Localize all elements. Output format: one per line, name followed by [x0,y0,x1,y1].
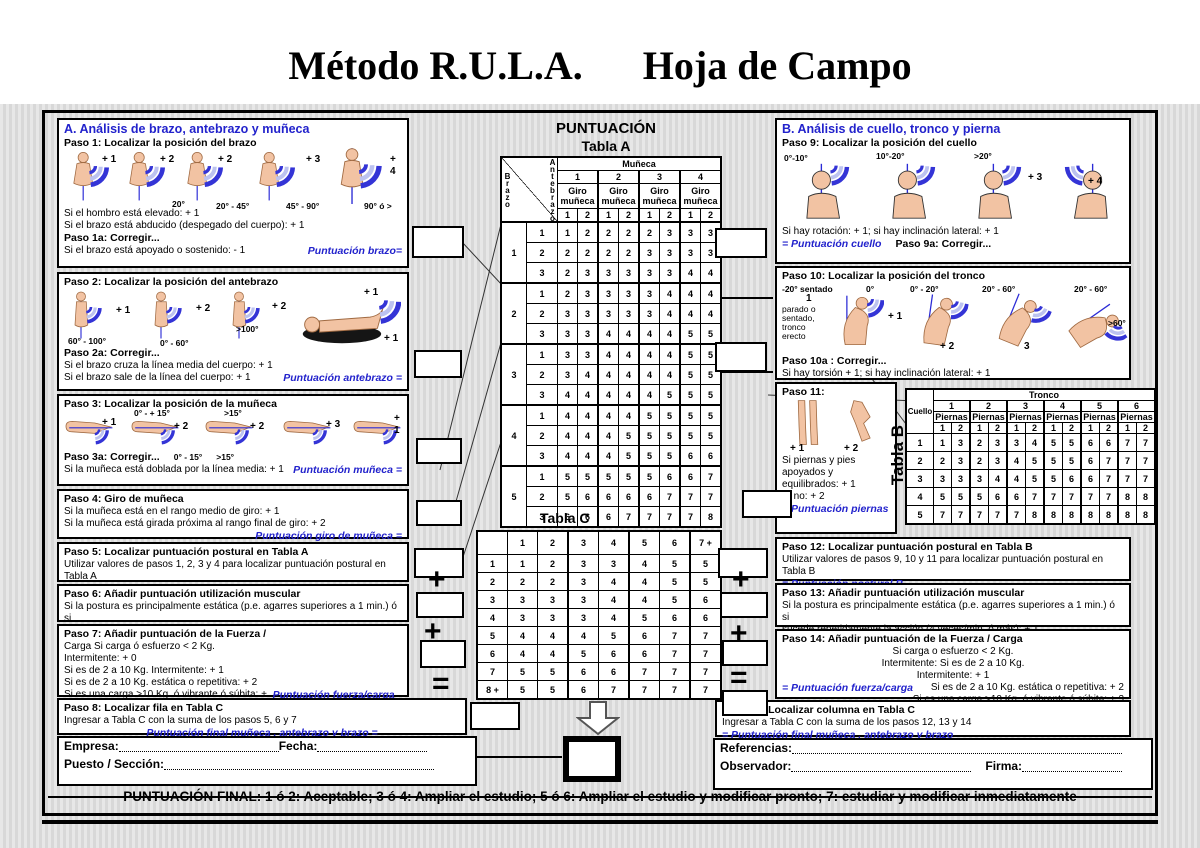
tronco-col: 3 [1007,401,1044,412]
firma-field[interactable] [1022,760,1122,772]
table-cell: 3 [508,609,538,627]
forearm-figure-icon [146,289,194,343]
figure-angle: 0°-10° [784,152,808,164]
table-cell: 3 [639,304,660,324]
paso-2-box: Paso 2: Localizar la posición del antebr… [57,272,409,391]
paso-1-box: A. Análisis de brazo, antebrazo y muñeca… [57,118,409,268]
section-a-header: A. Análisis de brazo, antebrazo y muñeca [64,122,402,137]
paso-3-line1: Si la muñeca está doblada por la línea m… [64,464,284,476]
table-cell: 4 [639,324,660,345]
row-header: 3 [527,446,558,467]
row-group-header: 3 [501,344,527,405]
paso-5-title: Paso 5: Localizar puntuación postural en… [64,546,402,559]
row-header: 2 [527,365,558,385]
arm-figure-icon [332,146,390,208]
table-cell: 7 [934,506,952,525]
final-score-slot[interactable] [563,736,621,782]
table-cell: 4 [629,555,660,573]
paso-12-box: Paso 12: Localizar puntuación postural e… [775,537,1131,581]
paso-15-title: Paso 15: Localizar columna en Tabla C [722,704,1124,717]
table-cell: 3 [952,434,971,452]
table-cell: 4 [1007,470,1026,488]
empresa-field[interactable] [119,740,279,752]
table-cell: 3 [989,452,1008,470]
table-cell: 1 [934,434,952,452]
table-cell: 6 [701,446,722,467]
table-cell: 7 [660,627,691,645]
table-cell: 3 [952,470,971,488]
table-cell: 3 [558,324,578,345]
paso-7-line1: Carga Si carga ó esfuerzo < 2 Kg. [64,641,402,653]
table-cell: 7 [1044,488,1063,506]
table-cell: 5 [690,573,721,591]
tabla-c-col: 2 [538,531,569,555]
paso-9-score-slot[interactable] [715,228,767,258]
paso-4-box: Paso 4: Giro de muñeca Si la muñeca está… [57,489,409,539]
paso-2-score-slot[interactable] [414,350,462,378]
paso-3-score-slot[interactable] [416,438,462,464]
table-cell: 7 [690,681,721,700]
table-cell: 5 [660,591,691,609]
cuello-axis-label: Cuello [906,389,934,434]
table-cell: 7 [970,506,989,525]
table-cell: 7 [1118,470,1137,488]
table-cell: 5 [599,627,630,645]
paso-2-line2: Si el brazo sale de la línea del cuerpo:… [64,372,251,384]
paso-2-figures: + 1 + 2 + 2 + 1 + 1 60° - 100° 0° - 60° … [64,289,402,347]
table-cell: 1 [558,222,578,243]
row-header: 8 + [477,681,508,700]
paso-15-line1: Ingresar a Tabla C con la suma de los pa… [722,717,1124,729]
figure-angle: >15° [224,407,242,419]
figure-angle: 0° - 60° [160,337,189,349]
figure-score: + 1 [102,417,116,429]
table-cell: 5 [598,466,619,487]
tronco-col: 1 [934,401,971,412]
paso-3a-correg: Paso 3a: Corregir... [64,451,160,464]
table-cell: 6 [568,681,599,700]
paso-11-title: Paso 11: [782,386,890,399]
paso-8-box: Paso 8: Localizar fila en Tabla C Ingres… [57,698,467,735]
paso-12-title: Paso 12: Localizar puntuación postural e… [782,541,1124,554]
table-cell: 4 [989,470,1008,488]
figure-angle: 45° - 90° [286,200,319,212]
table-cell: 7 [690,627,721,645]
table-cell: 3 [680,222,701,243]
table-cell: 5 [1063,434,1082,452]
table-cell: 4 [629,591,660,609]
tabla-a: Brazo Antebrazo Muñeca 1 2 3 4 Giro muñe… [500,156,722,528]
paso-13-score-slot[interactable] [720,592,768,618]
figure-angle: >60° [1108,317,1126,329]
table-cell: 7 [1137,434,1156,452]
table-cell: 7 [1081,488,1100,506]
table-cell: 7 [690,663,721,681]
figure-score: + 1 [384,333,398,345]
figure-angle: >100° [236,323,259,335]
table-cell: 5 [701,405,722,426]
table-cell: 3 [598,304,619,324]
table-cell: 6 [1063,470,1082,488]
table-cell: 3 [578,304,599,324]
table-cell: 4 [1007,452,1026,470]
tabla-c-title: Tabla C [540,510,590,526]
parado-label: parado o sentado, tronco erecto [782,305,826,341]
puntuacion-title: PUNTUACIÓN [500,120,712,137]
paso-15-score-slot[interactable] [722,690,768,716]
referencias-label: Referencias: [720,742,792,754]
paso-13-box: Paso 13: Añadir puntuación utilización m… [775,583,1131,627]
paso-6-title: Paso 6: Añadir puntuación utilización mu… [64,588,402,601]
giro-header: Giro muñeca [680,184,721,209]
table-cell: 8 [1044,506,1063,525]
figure-angle: >15° [216,451,234,464]
paso-3-figures: + 1 + 2 + 2 + 3 + 1 0° - + 15° >15° [64,411,402,451]
figure-angle: 60° - 100° [68,335,106,347]
row-header: 2 [906,452,934,470]
paso-8-score-slot[interactable] [470,702,520,730]
paso-8-line1: Ingresar a Tabla C con la suma de los pa… [64,715,460,727]
paso-9-figures: 0°-10° 10°-20° >20° + 3 + 4 [782,150,1124,226]
table-cell: 3 [578,344,599,365]
referencias-field[interactable] [792,742,1122,754]
table-cell: 5 [1026,452,1045,470]
table-cell: 5 [538,681,569,700]
giro-header: Giro muñeca [639,184,680,209]
paso-1a-correg: Paso 1a: Corregir... [64,232,160,245]
paso-14-line3: Intermitente: + 1 [782,670,1124,682]
table-cell: 7 [701,487,722,507]
table-cell: 4 [578,426,599,446]
paso-7-line4: Si es de 2 a 10 Kg. estática o repetitiv… [64,677,402,689]
row-group-header: 4 [501,405,527,466]
empresa-box: Empresa: Fecha: Puesto / Sección: [57,736,477,786]
neck-figure-icon [1060,160,1118,222]
paso-10-score-slot[interactable] [715,342,767,372]
table-cell: 5 [639,446,660,467]
row-group-header: 2 [501,283,527,344]
equals-operator: = [432,670,450,698]
table-cell: 5 [660,426,681,446]
giro-sub: 1 [598,208,619,222]
table-cell: 6 [639,487,660,507]
table-cell: 4 [598,385,619,406]
paso-2a-correg: Paso 2a: Corregir... [64,347,402,360]
neck-figure-icon [968,160,1026,222]
table-cell: 4 [680,263,701,284]
puesto-field[interactable] [164,758,434,770]
table-cell: 4 [558,405,578,426]
paso-7-score-slot[interactable] [420,640,466,668]
figure-score: + 1 [888,311,902,323]
referencias-box: Referencias: Observador: Firma: [713,738,1153,790]
observador-field[interactable] [791,760,971,772]
fecha-field[interactable] [317,740,427,752]
paso-11-box: Paso 11: + 1 + 2 Si piernas y pies apoya… [775,382,897,534]
paso-14-box: Paso 14: Añadir puntuación de la Fuerza … [775,629,1131,699]
table-cell: 4 [619,344,640,365]
piernas-header: Piernas [1081,412,1118,423]
paso-10-line1: Si hay torsión + 1; si hay inclinación l… [782,368,1124,380]
paso-9-line1: Si hay rotación: + 1; si hay inclinación… [782,226,1124,238]
table-cell: 5 [701,426,722,446]
figure-score: + 2 [218,154,232,166]
table-cell: 7 [989,506,1008,525]
paso-11-score-slot[interactable] [742,490,792,518]
table-cell: 2 [538,573,569,591]
paso-4-score-label: Puntuación giro de muñeca = [64,530,402,542]
wrist-figure-icon [204,415,256,447]
table-cell: 4 [598,324,619,345]
table-cell: 3 [558,344,578,365]
row-group-header: 1 [501,222,527,283]
row-header: 1 [527,222,558,243]
row-header: 4 [906,488,934,506]
table-cell: 6 [619,487,640,507]
tronco-col: 6 [1118,401,1155,412]
table-cell: 3 [660,263,681,284]
row-header: 3 [527,385,558,406]
row-header: 5 [906,506,934,525]
row-header: 3 [906,470,934,488]
figure-angle: 10°-20° [876,150,905,162]
paso-4-line2: Si la muñeca está girada próxima al rang… [64,518,402,530]
table-cell: 3 [970,470,989,488]
row-header: 1 [527,466,558,487]
table-cell: 6 [680,446,701,467]
paso-1-figures: + 1 + 2 + 2 + 3 + 4 20° 20° - 45° 45° - … [64,150,402,208]
table-cell: 3 [619,263,640,284]
tronco-col: 5 [1081,401,1118,412]
table-cell: 7 [660,487,681,507]
table-cell: 5 [680,426,701,446]
table-cell: 4 [639,365,660,385]
table-cell: 2 [538,555,569,573]
table-cell: 7 [680,507,701,528]
row-header: 2 [477,573,508,591]
figure-angle: 20° - 45° [216,200,249,212]
table-cell: 6 [660,609,691,627]
table-cell: 7 [629,663,660,681]
tabla-c: 1 2 3 4 5 6 7 + 112334552223445533334456… [476,530,722,700]
paso-1-score-slot[interactable] [412,226,464,258]
table-cell: 3 [558,365,578,385]
table-cell: 4 [639,385,660,406]
table-cell: 5 [568,645,599,663]
table-cell: 5 [558,466,578,487]
bottom-border [42,820,1158,824]
piernas-sub: 1 [1007,423,1026,434]
figure-angle: 90° ó > [364,200,392,212]
table-cell: 6 [1081,452,1100,470]
table-cell: 8 [1137,488,1156,506]
table-cell: 3 [598,263,619,284]
table-cell: 5 [660,555,691,573]
table-cell: 4 [598,344,619,365]
table-cell: 4 [599,573,630,591]
table-cell: 4 [701,283,722,304]
giro-sub: 1 [680,208,701,222]
paso-2-score-label: Puntuación antebrazo = [283,372,402,384]
table-cell: 5 [619,466,640,487]
paso-3-score-label: Puntuación muñeca = [293,464,402,476]
piernas-header: Piernas [1118,412,1155,423]
giro-header: Giro muñeca [598,184,639,209]
table-cell: 7 [639,507,660,528]
paso-1-line2: Si el brazo está abducido (despegado del… [64,220,402,232]
table-cell: 5 [690,555,721,573]
row-header: 5 [477,627,508,645]
final-score-legend: PUNTUACIÓN FINAL: 1 ó 2: Aceptable; 3 ó … [48,786,1152,808]
table-cell: 7 [952,506,971,525]
table-cell: 3 [578,283,599,304]
equals-operator: = [730,664,748,692]
table-cell: 3 [538,591,569,609]
table-cell: 8 [1100,506,1119,525]
paso-3-box: Paso 3: Localizar la posición de la muñe… [57,394,409,486]
figure-score: + 1 [790,443,804,455]
paso-4-score-slot[interactable] [416,500,462,526]
figure-angle: >20° [974,150,992,162]
neck-figure-icon [796,160,854,222]
table-cell: 4 [660,283,681,304]
table-cell: 6 [598,507,619,528]
table-cell: 4 [660,324,681,345]
piernas-sub: 1 [1081,423,1100,434]
table-cell: 6 [660,466,681,487]
figure-score: + 2 [844,443,858,455]
figure-angle: 0° - 20° [910,283,939,295]
table-cell: 4 [701,304,722,324]
paso-6-box: Paso 6: Añadir puntuación utilización mu… [57,584,409,622]
figure-score: + 3 [326,419,340,431]
neck-figure-icon [882,160,940,222]
table-cell: 6 [989,488,1008,506]
table-cell: 8 [1081,506,1100,525]
table-cell: 6 [1081,434,1100,452]
table-cell: 2 [558,243,578,263]
table-cell: 6 [629,645,660,663]
paso-7-line2: Intermitente: + 0 [64,653,402,665]
section-b-header: B. Análisis de cuello, tronco y pierna [782,122,1124,137]
paso-6-line1: Si la postura es principalmente estática… [64,601,402,625]
piernas-header: Piernas [934,412,971,423]
table-cell: 5 [660,405,681,426]
piernas-sub: 2 [1063,423,1082,434]
table-cell: 5 [934,488,952,506]
table-cell: 5 [629,609,660,627]
table-cell: 2 [619,243,640,263]
table-cell: 3 [639,243,660,263]
table-cell: 4 [619,385,640,406]
piernas-header: Piernas [1007,412,1044,423]
observador-label: Observador: [720,760,791,772]
row-header: 2 [527,304,558,324]
plus-operator: + [428,566,446,594]
table-cell: 3 [568,555,599,573]
figure-score: + 4 [390,154,402,178]
row-header: 1 [527,283,558,304]
table-cell: 5 [660,573,691,591]
trunk-figure-icon [908,288,970,355]
table-cell: 8 [701,507,722,528]
paso-10-box: Paso 10: Localizar la posición del tronc… [775,266,1131,380]
table-cell: 4 [508,627,538,645]
row-header: 2 [527,243,558,263]
tabla-c-col: 6 [660,531,691,555]
table-cell: 5 [680,385,701,406]
figure-score: + 1 [102,154,116,166]
row-header: 6 [477,645,508,663]
row-header: 4 [477,609,508,627]
table-cell: 5 [508,681,538,700]
table-cell: 6 [680,466,701,487]
paso-14-title: Paso 14: Añadir puntuación de la Fuerza … [782,633,1124,646]
table-cell: 4 [619,405,640,426]
table-cell: 3 [508,591,538,609]
table-cell: 2 [934,452,952,470]
table-cell: 4 [680,283,701,304]
table-cell: 7 [1137,452,1156,470]
table-cell: 5 [1044,470,1063,488]
table-cell: 4 [680,304,701,324]
table-cell: 4 [568,627,599,645]
table-cell: 7 [1063,488,1082,506]
table-cell: 4 [639,344,660,365]
table-cell: 3 [599,555,630,573]
piernas-sub: 2 [989,423,1008,434]
figure-score: + 2 [940,341,954,353]
brazo-axis-label: Brazo [502,158,512,221]
piernas-header: Piernas [1044,412,1081,423]
piernas-sub: 2 [952,423,971,434]
tabla-c-col: 5 [629,531,660,555]
table-cell: 7 [1026,488,1045,506]
tronco-col: 2 [970,401,1007,412]
giro-sub: 2 [578,208,599,222]
table-cell: 2 [619,222,640,243]
table-cell: 3 [639,283,660,304]
table-cell: 4 [508,645,538,663]
table-cell: 3 [598,283,619,304]
row-header: 2 [527,426,558,446]
table-cell: 5 [701,324,722,345]
figure-score: 3 [1024,341,1030,353]
paso-11-score-label: = Puntuación piernas [782,503,890,515]
table-cell: 3 [568,591,599,609]
giro-sub: 2 [660,208,681,222]
table-cell: 6 [578,487,599,507]
paso-9-box: B. Análisis de cuello, tronco y pierna P… [775,118,1131,264]
figure-angle: 20° - 60° [982,283,1015,295]
row-group-header: 5 [501,466,527,527]
paso-12-line1: Utilizar valores de pasos 9, 10 y 11 par… [782,554,1124,578]
table-cell: 7 [599,681,630,700]
table-cell: 5 [680,365,701,385]
table-cell: 2 [558,263,578,284]
paso-14-score-label: = Puntuación fuerza/carga [782,682,913,694]
piernas-sub: 1 [970,423,989,434]
table-cell: 3 [538,609,569,627]
table-cell: 8 [1118,506,1137,525]
figure-angle: 0° - + 15° [134,407,170,419]
paso-8-title: Paso 8: Localizar fila en Tabla C [64,702,460,715]
table-cell: 7 [660,681,691,700]
table-cell: 4 [558,385,578,406]
arm-figure-icon [252,150,302,204]
figure-angle: 0° [866,283,874,295]
table-cell: 7 [629,681,660,700]
